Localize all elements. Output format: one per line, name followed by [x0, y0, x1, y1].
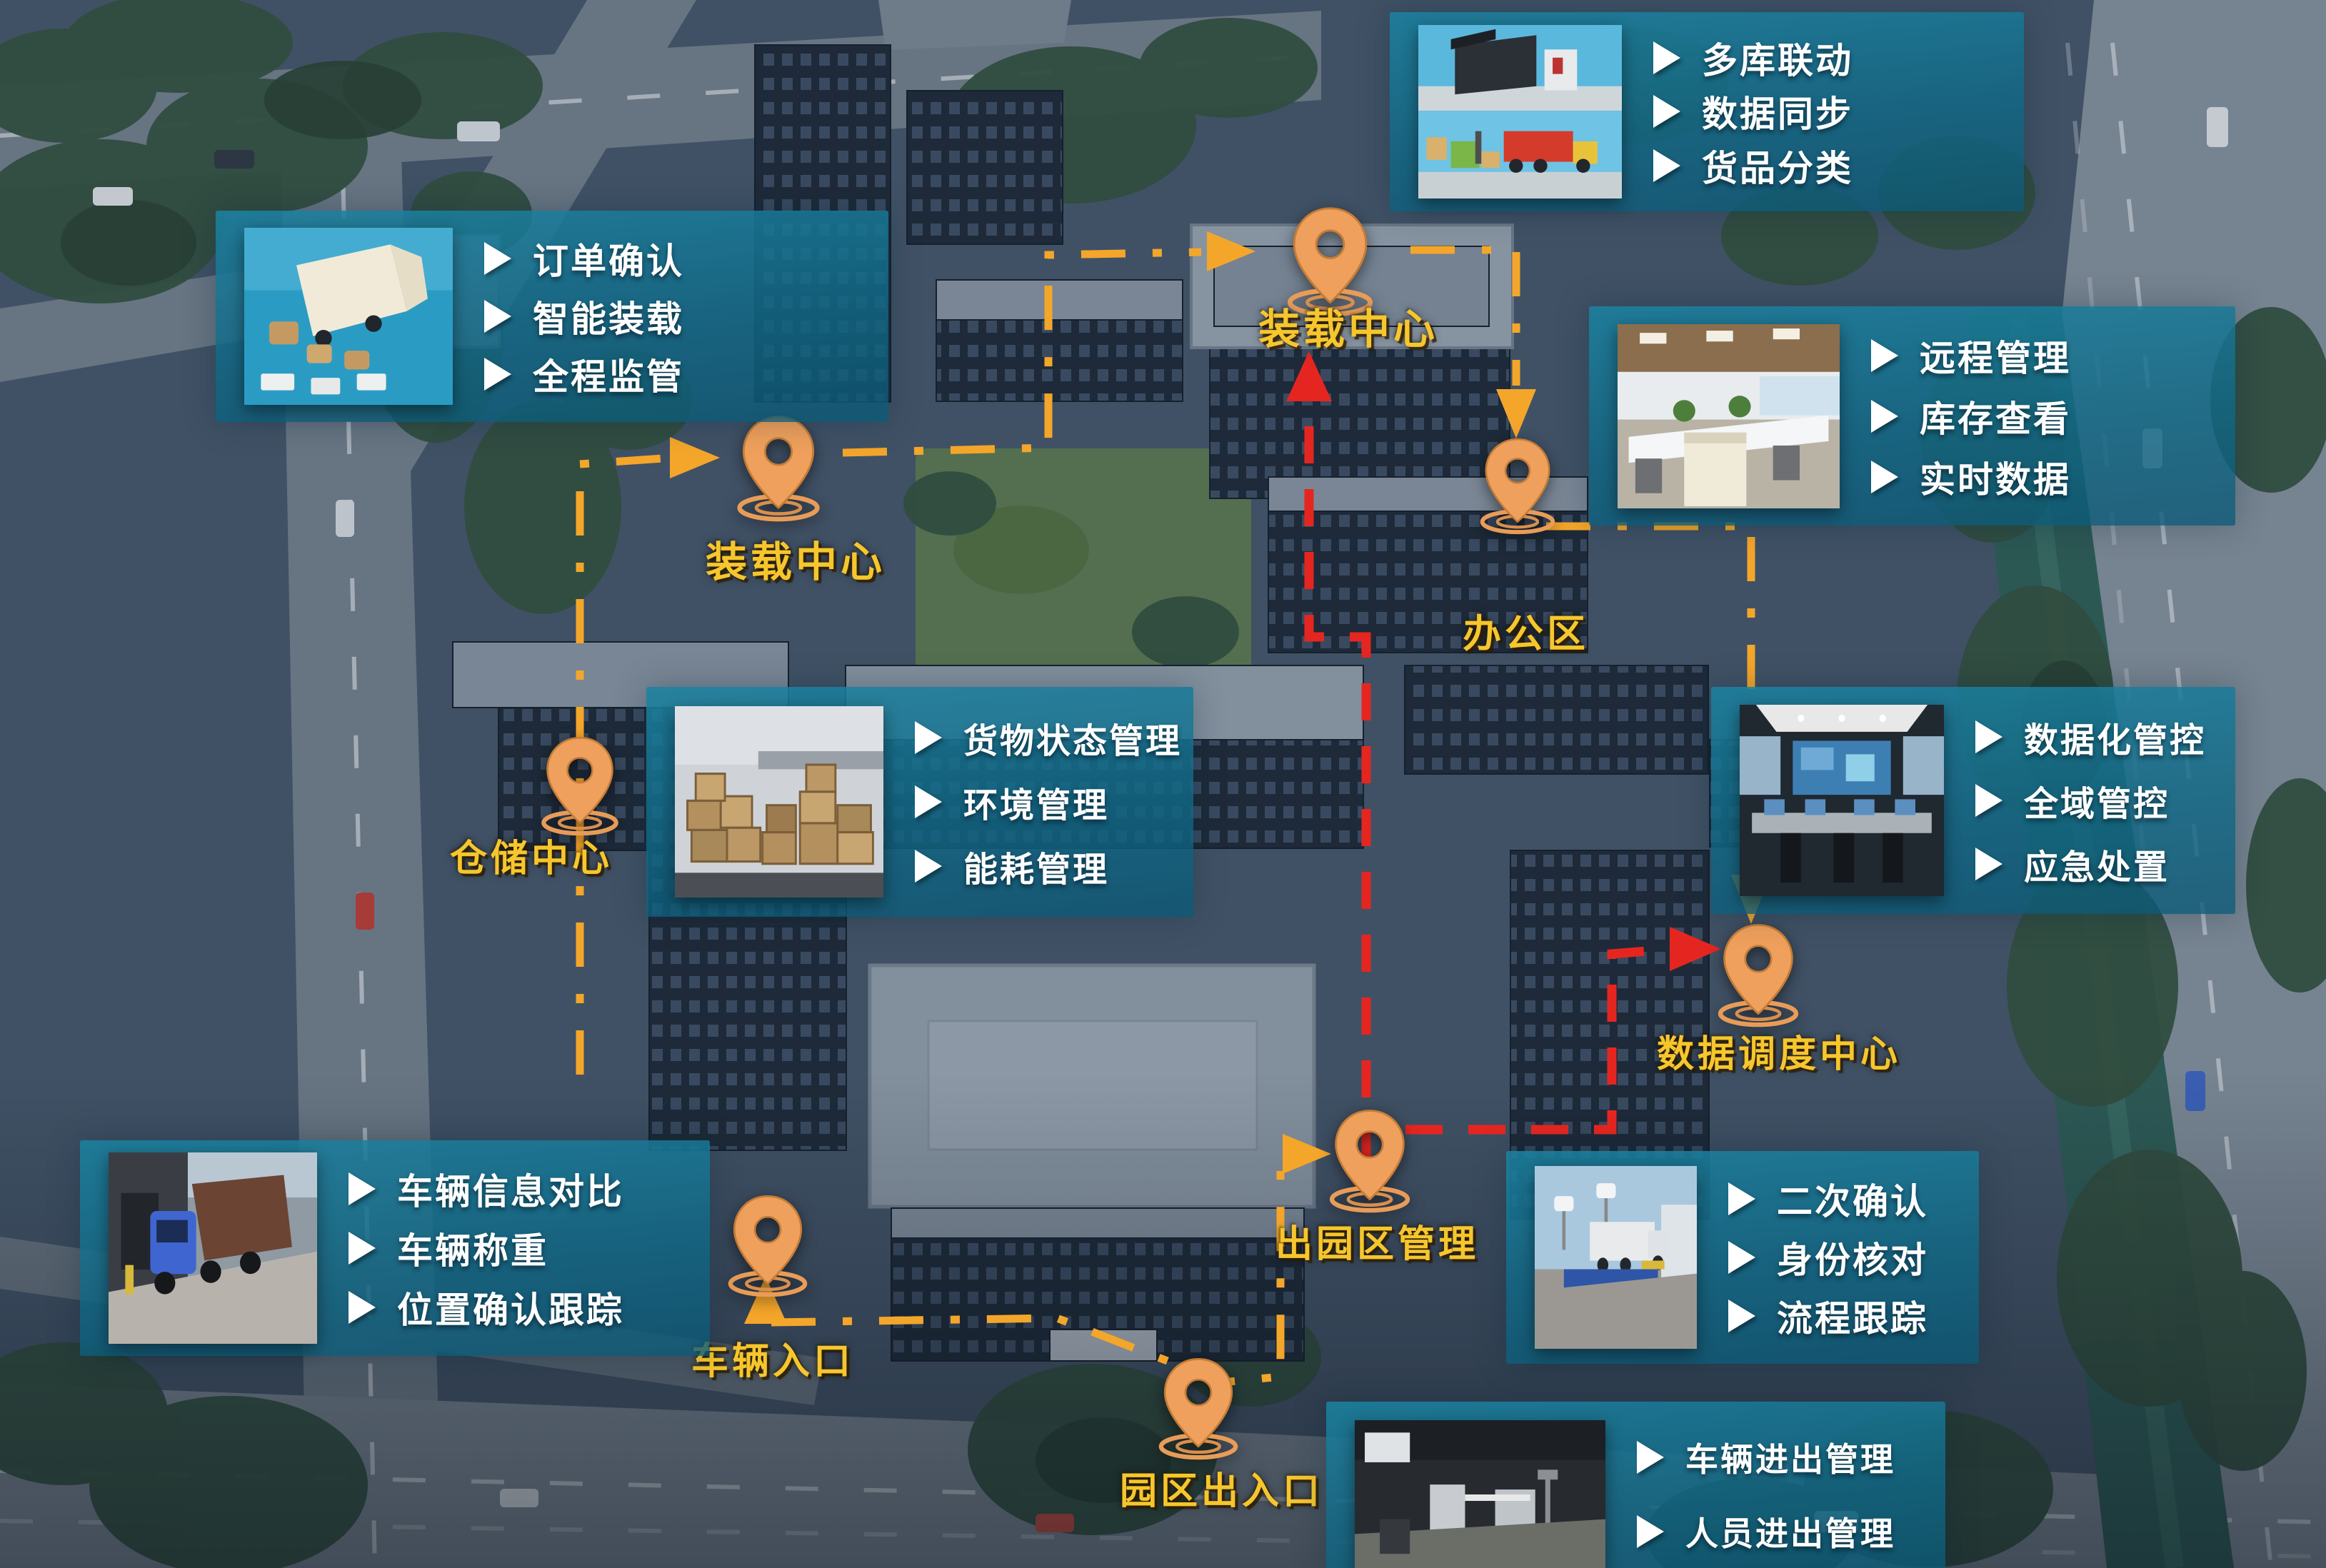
- arrow-bullet-icon: [1653, 149, 1680, 182]
- feature-label: 应急处置: [2024, 839, 2170, 889]
- feature-item: 货品分类: [1653, 140, 1995, 191]
- feature-label: 车辆信息对比: [397, 1163, 624, 1215]
- map-pin-exit-park-management: [1318, 1107, 1422, 1217]
- map-pin-office-area: [1469, 436, 1566, 539]
- feature-label: 货品分类: [1702, 140, 1853, 191]
- arrow-bullet-icon: [1637, 1515, 1664, 1548]
- photo-gate-truck: [109, 1152, 317, 1344]
- feature-label: 位置确认跟踪: [397, 1282, 624, 1333]
- arrow-bullet-icon: [1871, 461, 1898, 493]
- arrow-bullet-icon: [1637, 1441, 1664, 1474]
- pin-label-office-area: 办公区: [1463, 602, 1589, 658]
- photo-office-interior: [1618, 324, 1840, 508]
- feature-item: 数据同步: [1653, 86, 1995, 137]
- feature-item: 二次确认: [1728, 1173, 1950, 1225]
- feature-label: 环境管理: [963, 777, 1109, 827]
- feature-label: 身份核对: [1777, 1232, 1928, 1283]
- feature-item: 实时数据: [1871, 451, 2207, 503]
- feature-item: 身份核对: [1728, 1232, 1950, 1283]
- arrow-bullet-icon: [349, 1232, 376, 1265]
- feature-label: 全域管控: [2024, 775, 2170, 825]
- feature-label: 库存查看: [1920, 391, 2071, 442]
- feature-item: 智能装载: [484, 291, 860, 342]
- feature-item: 车辆进出管理: [1637, 1434, 1917, 1481]
- feature-item: 全程监管: [484, 348, 860, 400]
- feature-item: 车辆信息对比: [349, 1163, 681, 1215]
- feature-item: 多库联动: [1653, 32, 1995, 84]
- arrow-bullet-icon: [349, 1172, 376, 1205]
- pin-label-loading-center-top: 装载中心: [1258, 296, 1438, 356]
- arrow-bullet-icon: [1653, 95, 1680, 128]
- smart-logistics-park-diagram: 装载中心 装载中心 办公区 仓储中心 数据调度中心 出园区管理: [0, 0, 2326, 1568]
- pin-label-loading-center-left: 装载中心: [706, 528, 886, 588]
- callout-panel-vehicle-check: 车辆信息对比 车辆称重 位置确认跟踪: [80, 1140, 710, 1356]
- arrow-bullet-icon: [484, 300, 511, 333]
- callout-panel-exit-confirm: 二次确认 身份核对 流程跟踪: [1506, 1151, 1979, 1364]
- feature-item: 位置确认跟踪: [349, 1282, 681, 1333]
- photo-warehouse-boxes: [675, 706, 883, 898]
- photo-weighbridge: [1535, 1166, 1697, 1349]
- pin-label-exit-park-management: 出园区管理: [1275, 1214, 1479, 1267]
- photo-control-room: [1740, 705, 1944, 896]
- feature-label: 车辆称重: [397, 1222, 548, 1274]
- callout-panel-remote-management: 远程管理 库存查看 实时数据: [1589, 306, 2235, 526]
- arrow-bullet-icon: [915, 785, 942, 818]
- location-pin-icon: [530, 734, 630, 840]
- arrow-bullet-icon: [1728, 1300, 1755, 1332]
- location-pin-icon: [716, 1192, 819, 1302]
- feature-item: 环境管理: [915, 777, 1182, 827]
- feature-item: 全域管控: [1975, 775, 2207, 825]
- feature-label: 流程跟踪: [1777, 1290, 1928, 1342]
- feature-label: 货物状态管理: [963, 713, 1182, 763]
- feature-item: 货物状态管理: [915, 713, 1182, 763]
- feature-item: 流程跟踪: [1728, 1290, 1950, 1342]
- callout-panel-cargo-status: 货物状态管理 环境管理 能耗管理: [646, 687, 1193, 917]
- pin-label-warehouse-center: 仓储中心: [450, 828, 613, 882]
- feature-item: 应急处置: [1975, 839, 2207, 889]
- map-pin-vehicle-entrance: [716, 1192, 819, 1302]
- callout-panel-multi-warehouse: 多库联动 数据同步 货品分类: [1390, 12, 2024, 211]
- feature-item: 库存查看: [1871, 391, 2207, 442]
- feature-label: 车辆进出管理: [1685, 1434, 1895, 1481]
- arrow-bullet-icon: [1975, 720, 2002, 753]
- feature-label: 全程监管: [533, 348, 684, 400]
- arrow-bullet-icon: [349, 1291, 376, 1324]
- location-pin-icon: [1469, 436, 1566, 539]
- feature-label: 数据同步: [1702, 86, 1853, 137]
- callout-panel-data-control: 数据化管控 全域管控 应急处置: [1711, 687, 2235, 914]
- photo-warehouse-truck: [1418, 25, 1622, 198]
- feature-label: 订单确认: [533, 233, 684, 284]
- arrow-bullet-icon: [484, 358, 511, 391]
- arrow-bullet-icon: [1871, 400, 1898, 433]
- feature-label: 远程管理: [1920, 330, 2071, 381]
- feature-item: 车辆称重: [349, 1222, 681, 1274]
- map-pin-data-dispatch-center: [1706, 921, 1810, 1032]
- photo-truck-loading: [244, 228, 453, 405]
- feature-label: 能耗管理: [963, 841, 1109, 891]
- feature-label: 智能装载: [533, 291, 684, 342]
- arrow-bullet-icon: [1728, 1241, 1755, 1274]
- arrow-bullet-icon: [1728, 1182, 1755, 1215]
- location-pin-icon: [1706, 921, 1810, 1032]
- callout-panel-gate-management: 车辆进出管理 人员进出管理: [1326, 1402, 1945, 1568]
- arrow-bullet-icon: [484, 242, 511, 275]
- pin-label-data-dispatch-center: 数据调度中心: [1657, 1024, 1901, 1077]
- feature-label: 人员进出管理: [1685, 1508, 1895, 1555]
- pin-label-vehicle-entrance: 车辆入口: [691, 1331, 854, 1384]
- feature-label: 数据化管控: [2024, 712, 2206, 762]
- feature-label: 实时数据: [1920, 451, 2071, 503]
- photo-entrance-gate: [1355, 1420, 1605, 1568]
- arrow-bullet-icon: [1975, 848, 2002, 880]
- map-pin-park-gate: [1147, 1355, 1250, 1464]
- map-pin-loading-center-left: [725, 413, 832, 526]
- location-pin-icon: [1147, 1355, 1250, 1464]
- callout-panel-order-confirm: 订单确认 智能装载 全程监管: [216, 211, 888, 422]
- feature-item: 能耗管理: [915, 841, 1182, 891]
- location-pin-icon: [1318, 1107, 1422, 1217]
- feature-label: 二次确认: [1777, 1173, 1928, 1225]
- feature-item: 订单确认: [484, 233, 860, 284]
- feature-item: 远程管理: [1871, 330, 2207, 381]
- feature-item: 数据化管控: [1975, 712, 2207, 762]
- feature-item: 人员进出管理: [1637, 1508, 1917, 1555]
- arrow-bullet-icon: [915, 721, 942, 754]
- arrow-bullet-icon: [1975, 784, 2002, 817]
- feature-label: 多库联动: [1702, 32, 1853, 84]
- arrow-bullet-icon: [915, 850, 942, 883]
- location-pin-icon: [725, 413, 832, 526]
- map-pin-warehouse-center: [530, 734, 630, 840]
- arrow-bullet-icon: [1871, 339, 1898, 372]
- arrow-bullet-icon: [1653, 41, 1680, 74]
- pin-label-park-gate: 园区出入口: [1120, 1461, 1323, 1514]
